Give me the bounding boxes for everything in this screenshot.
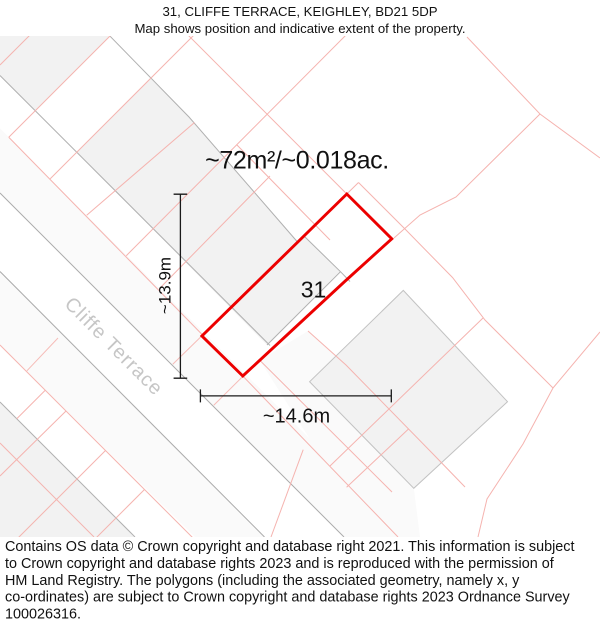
- svg-text:co-ordinates) are subject to C: co-ordinates) are subject to Crown copyr…: [5, 590, 571, 606]
- svg-text:100026316.: 100026316.: [5, 607, 81, 623]
- svg-text:31, CLIFFE TERRACE, KEIGHLEY,: 31, CLIFFE TERRACE, KEIGHLEY, BD21 5DP: [162, 4, 437, 19]
- svg-text:Contains OS data © Crown copyr: Contains OS data © Crown copyright and d…: [5, 539, 574, 555]
- svg-text:~13.9m: ~13.9m: [156, 257, 175, 314]
- svg-text:to Crown copyright and databas: to Crown copyright and database rights 2…: [5, 556, 555, 572]
- svg-text:HM Land Registry. The polygons: HM Land Registry. The polygons (includin…: [5, 573, 520, 589]
- svg-text:Map shows position and indicat: Map shows position and indicative extent…: [134, 21, 465, 36]
- svg-text:31: 31: [301, 277, 327, 303]
- svg-text:~72m²/~0.018ac.: ~72m²/~0.018ac.: [205, 147, 389, 175]
- svg-text:~14.6m: ~14.6m: [263, 406, 330, 428]
